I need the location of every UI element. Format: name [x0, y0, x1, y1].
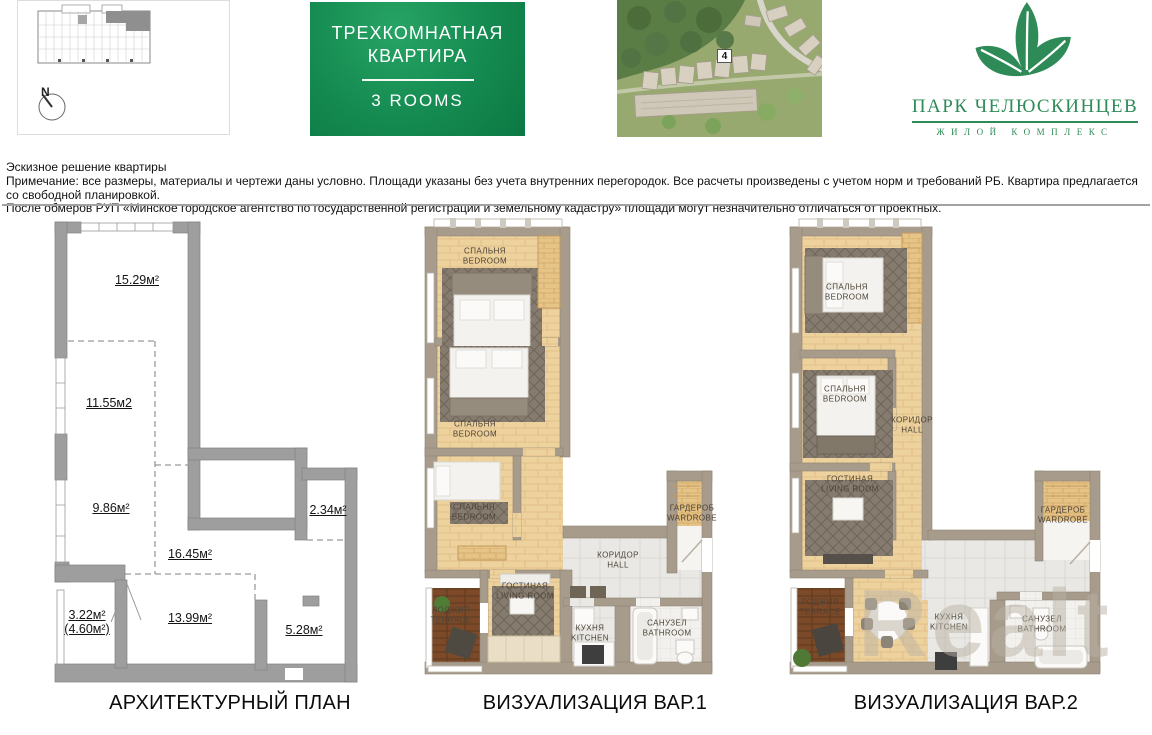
- arch-window-ticks: [56, 223, 153, 536]
- room-label-hall: КОРИДОРHALL: [891, 416, 933, 437]
- room-label-bedroom1: СПАЛЬНЯBEDROOM: [463, 247, 507, 268]
- visualization-1-plan: СПАЛЬНЯBEDROOM СПАЛЬНЯBEDROOM СПАЛЬНЯBED…: [420, 218, 735, 688]
- compass-north-label: N: [41, 85, 50, 99]
- room-label-kitchen: КУХНЯKITCHEN: [571, 624, 609, 645]
- banner-title-line2: КВАРТИРА: [310, 45, 525, 68]
- room-label-living: ГОСТИНАЯLIVING ROOM: [496, 582, 554, 603]
- logo-title: ПАРК ЧЕЛЮСКИНЦЕВ: [912, 96, 1138, 123]
- logo-subtitle: ЖИЛОЙ КОМПЛЕКС: [905, 127, 1145, 137]
- caption-visualization-1: ВИЗУАЛИЗАЦИЯ ВАР.1: [435, 692, 755, 715]
- caption-visualization-2: ВИЗУАЛИЗАЦИЯ ВАР.2: [806, 692, 1126, 715]
- area-label-13-99: 13.99м²: [168, 611, 212, 625]
- room-label-loggia: ЛОДЖИЯTERRACE: [799, 598, 840, 619]
- brand-logo: ПАРК ЧЕЛЮСКИНЦЕВ ЖИЛОЙ КОМПЛЕКС: [905, 0, 1145, 137]
- area-label-11-55: 11.55м2: [86, 396, 132, 410]
- horizontal-divider: [2, 204, 1150, 206]
- disclaimer-notes: Эскизное решение квартиры Примечание: вс…: [6, 161, 1148, 216]
- realt-watermark: Realt: [858, 576, 1113, 672]
- room-label-living: ГОСТИНАЯLIVING ROOM: [821, 475, 879, 496]
- logo-leaves-icon: [970, 0, 1080, 96]
- key-plan-drawing: [18, 1, 229, 134]
- room-label-bedroom2: СПАЛЬНЯBEDROOM: [823, 385, 867, 406]
- room-label-bedroom1: СПАЛЬНЯBEDROOM: [825, 283, 869, 304]
- room-label-loggia: ЛОДЖИЯTERRACE: [430, 606, 471, 627]
- room-label-wardrobe: ГАРДЕРОБWARDROBE: [667, 504, 717, 525]
- room-label-bedroom3: СПАЛЬНЯBEDROOM: [452, 503, 496, 524]
- apartment-type-banner: ТРЕХКОМНАТНАЯ КВАРТИРА 3 ROOMS: [310, 2, 525, 136]
- area-label-2-34: 2.34м²: [309, 503, 346, 517]
- area-label-9-86: 9.86м²: [92, 501, 129, 515]
- room-label-bedroom2: СПАЛЬНЯBEDROOM: [453, 420, 497, 441]
- map-building-marker: 4: [717, 49, 732, 63]
- viz1-balcony-railing: [434, 218, 562, 228]
- banner-subtitle: 3 ROOMS: [310, 91, 525, 111]
- note-line-2: Примечание: все размеры, материалы и чер…: [6, 175, 1148, 203]
- area-label-15-29: 15.29м²: [115, 273, 159, 287]
- key-plan-box: N: [17, 0, 230, 135]
- room-label-bathroom: САНУЗЕЛBATHROOM: [643, 619, 692, 640]
- area-label-5-28: 5.28м²: [285, 623, 322, 637]
- flyer-page: N ТРЕХКОМНАТНАЯ КВАРТИРА 3 ROOMS: [0, 0, 1152, 735]
- note-line-1: Эскизное решение квартиры: [6, 161, 1148, 175]
- area-label-3-22: 3.22м² (4.60м²): [64, 608, 109, 636]
- banner-divider: [362, 79, 474, 81]
- caption-architectural-plan: АРХИТЕКТУРНЫЙ ПЛАН: [70, 692, 390, 715]
- viz2-balcony-railing: [799, 218, 921, 228]
- aerial-map-drawing: [617, 0, 822, 137]
- architectural-plan: 15.29м² 11.55м2 9.86м² 2.34м² 16.45м² 3.…: [45, 218, 360, 688]
- area-label-16-45: 16.45м²: [168, 547, 212, 561]
- room-label-wardrobe: ГАРДЕРОБWARDROBE: [1038, 506, 1088, 527]
- location-aerial-map: 4: [617, 0, 822, 137]
- room-label-hall: КОРИДОРHALL: [597, 551, 639, 572]
- banner-title-line1: ТРЕХКОМНАТНАЯ: [310, 2, 525, 45]
